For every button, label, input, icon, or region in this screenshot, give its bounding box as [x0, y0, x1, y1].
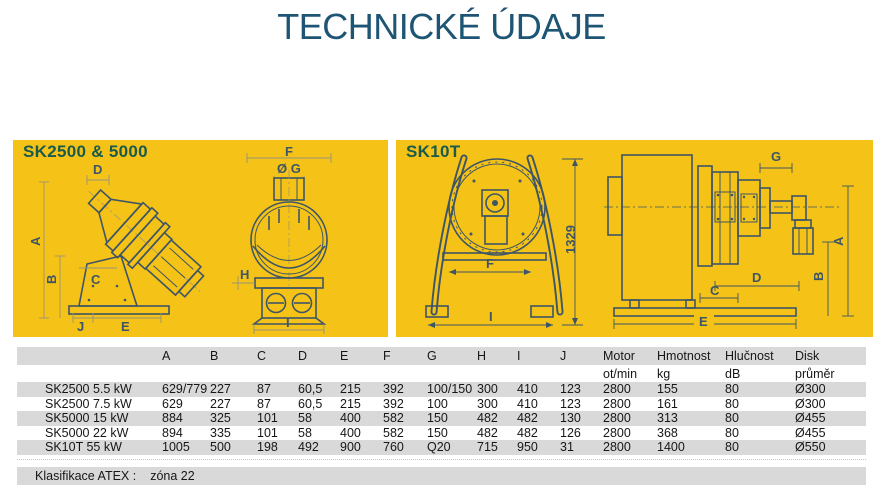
table-cell: 80 [725, 440, 795, 455]
col-header-a: A [162, 347, 210, 365]
dim-label-i: I [489, 309, 493, 324]
table-cell: Ø455 [795, 426, 866, 441]
table-cell: 1400 [657, 440, 725, 455]
table-cell: 130 [560, 411, 603, 426]
table-cell: 400 [340, 411, 383, 426]
row-model-name: SK2500 5.5 kW [17, 382, 162, 397]
table-cell: 161 [657, 397, 725, 412]
table-cell: 60,5 [298, 397, 340, 412]
table-cell: 392 [383, 382, 427, 397]
table-cell: 101 [257, 411, 298, 426]
table-cell: 629 [162, 397, 210, 412]
col-unit-model [17, 365, 162, 382]
table-cell: 215 [340, 382, 383, 397]
table-cell: Ø550 [795, 440, 866, 455]
col-unit-1 [210, 365, 257, 382]
panel-sk2500-5000: SK2500 & 5000 D [13, 140, 388, 337]
table-cell: 715 [477, 440, 517, 455]
table-cell: 500 [210, 440, 257, 455]
table-cell: 2800 [603, 440, 657, 455]
dim-label-g: G [771, 149, 781, 164]
col-header-motor: Motor [603, 347, 657, 365]
table-cell: 410 [517, 397, 560, 412]
table-cell: Ø455 [795, 411, 866, 426]
table-cell: 400 [340, 426, 383, 441]
table-row: SK5000 22 kW8943351015840058215048248212… [17, 426, 866, 441]
col-header-hmotnost: Hmotnost [657, 347, 725, 365]
col-unit-11: kg [657, 365, 725, 382]
table-cell: 80 [725, 397, 795, 412]
table-cell: 80 [725, 426, 795, 441]
table-cell: 1005 [162, 440, 210, 455]
table-cell: 155 [657, 382, 725, 397]
col-header-d: D [298, 347, 340, 365]
table-row: SK2500 7.5 kW6292278760,5215392100300410… [17, 397, 866, 412]
table-cell: 884 [162, 411, 210, 426]
col-unit-7 [477, 365, 517, 382]
dim-label-f: F [285, 146, 293, 159]
dim-label-a: A [28, 236, 43, 246]
table-cell: 300 [477, 397, 517, 412]
col-unit-10: ot/min [603, 365, 657, 382]
divider-dotted-line [17, 459, 866, 460]
col-unit-2 [257, 365, 298, 382]
col-unit-3 [298, 365, 340, 382]
table-cell: 482 [477, 426, 517, 441]
table-cell: 410 [517, 382, 560, 397]
dim-label-d: D [93, 162, 102, 177]
table-cell: 313 [657, 411, 725, 426]
panel-sk10t: SK10T F I [396, 140, 873, 337]
table-cell: 87 [257, 382, 298, 397]
dim-label-e: E [699, 314, 708, 329]
col-unit-12: dB [725, 365, 795, 382]
table-cell: 950 [517, 440, 560, 455]
table-cell: 629/779 [162, 382, 210, 397]
row-model-name: SK5000 22 kW [17, 426, 162, 441]
table-row: SK10T 55 kW1005500198492900760Q207159503… [17, 440, 866, 455]
table-cell: 123 [560, 397, 603, 412]
table-cell: 894 [162, 426, 210, 441]
sk2500-side-view-drawing: D A B [21, 160, 221, 332]
page-title: TECHNICKÉ ÚDAJE [0, 6, 883, 48]
table-cell: 31 [560, 440, 603, 455]
dim-label-c: C [710, 283, 720, 298]
col-header-b: B [210, 347, 257, 365]
table-cell: 760 [383, 440, 427, 455]
table-row: SK2500 5.5 kW629/7792278760,5215392100/1… [17, 382, 866, 397]
table-cell: 2800 [603, 397, 657, 412]
col-header-h: H [477, 347, 517, 365]
table-row: SK5000 15 kW8843251015840058215048248213… [17, 411, 866, 426]
col-header-g: G [427, 347, 477, 365]
table-cell: 482 [477, 411, 517, 426]
col-unit-0 [162, 365, 210, 382]
table-cell: 325 [210, 411, 257, 426]
atex-classification-bar: Klasifikace ATEX :zóna 22 [17, 467, 866, 485]
table-cell: 582 [383, 426, 427, 441]
table-cell: 150 [427, 426, 477, 441]
dim-label-b: B [811, 272, 826, 281]
table-cell: Ø300 [795, 382, 866, 397]
table-cell: Q20 [427, 440, 477, 455]
dim-label-height: 1329 [563, 225, 578, 254]
table-cell: 126 [560, 426, 603, 441]
col-header-j: J [560, 347, 603, 365]
table-cell: 80 [725, 411, 795, 426]
dim-label-i: I [286, 315, 290, 330]
table-cell: 123 [560, 382, 603, 397]
sk10t-side-view-drawing: G A B D C E [596, 146, 866, 334]
dim-label-a: A [831, 236, 846, 246]
table-cell: 900 [340, 440, 383, 455]
table-cell: 58 [298, 426, 340, 441]
table-cell: 227 [210, 397, 257, 412]
dim-label-f: F [486, 256, 494, 271]
table-units-row: ot/minkgdBprůměr [17, 365, 866, 382]
dim-label-b: B [44, 275, 59, 284]
table-cell: 482 [517, 426, 560, 441]
table-cell: 227 [210, 382, 257, 397]
col-header-i: I [517, 347, 560, 365]
panel-sk2500-title: SK2500 & 5000 [23, 142, 148, 162]
dim-label-d: D [752, 270, 761, 285]
table-cell: 215 [340, 397, 383, 412]
dim-label-c: C [91, 272, 101, 287]
col-unit-6 [427, 365, 477, 382]
col-unit-9 [560, 365, 603, 382]
col-header-disk: Disk [795, 347, 866, 365]
table-cell: 392 [383, 397, 427, 412]
table-cell: 100 [427, 397, 477, 412]
table-cell: 492 [298, 440, 340, 455]
table-cell: 60,5 [298, 382, 340, 397]
col-unit-5 [383, 365, 427, 382]
col-unit-4 [340, 365, 383, 382]
sk2500-front-view-drawing: F Ø G H I [228, 146, 378, 334]
table-cell: 368 [657, 426, 725, 441]
table-cell: Ø300 [795, 397, 866, 412]
dim-label-j: J [77, 319, 84, 332]
spec-table: ABCDEFGHIJMotorHmotnostHlučnostDisk ot/m… [17, 347, 866, 455]
table-cell: 582 [383, 411, 427, 426]
table-cell: 150 [427, 411, 477, 426]
col-unit-8 [517, 365, 560, 382]
table-cell: 482 [517, 411, 560, 426]
table-cell: 87 [257, 397, 298, 412]
dim-label-h: H [240, 267, 249, 282]
col-header-model [17, 347, 162, 365]
table-cell: 2800 [603, 426, 657, 441]
dim-label-e: E [121, 319, 130, 332]
row-model-name: SK5000 15 kW [17, 411, 162, 426]
col-header-hlučnost: Hlučnost [725, 347, 795, 365]
table-body: SK2500 5.5 kW629/7792278760,5215392100/1… [17, 382, 866, 455]
col-unit-13: průměr [795, 365, 866, 382]
table-cell: 101 [257, 426, 298, 441]
table-cell: 198 [257, 440, 298, 455]
table-cell: 2800 [603, 411, 657, 426]
table-cell: 335 [210, 426, 257, 441]
table-cell: 80 [725, 382, 795, 397]
col-header-f: F [383, 347, 427, 365]
table-cell: 58 [298, 411, 340, 426]
col-header-c: C [257, 347, 298, 365]
atex-value: zóna 22 [150, 469, 194, 483]
table-cell: 100/150 [427, 382, 477, 397]
sk10t-front-view-drawing: F I 1329 [404, 146, 589, 334]
row-model-name: SK2500 7.5 kW [17, 397, 162, 412]
col-header-e: E [340, 347, 383, 365]
table-cell: 300 [477, 382, 517, 397]
table-header-row: ABCDEFGHIJMotorHmotnostHlučnostDisk [17, 347, 866, 365]
row-model-name: SK10T 55 kW [17, 440, 162, 455]
atex-label: Klasifikace ATEX : [35, 469, 136, 483]
table-cell: 2800 [603, 382, 657, 397]
